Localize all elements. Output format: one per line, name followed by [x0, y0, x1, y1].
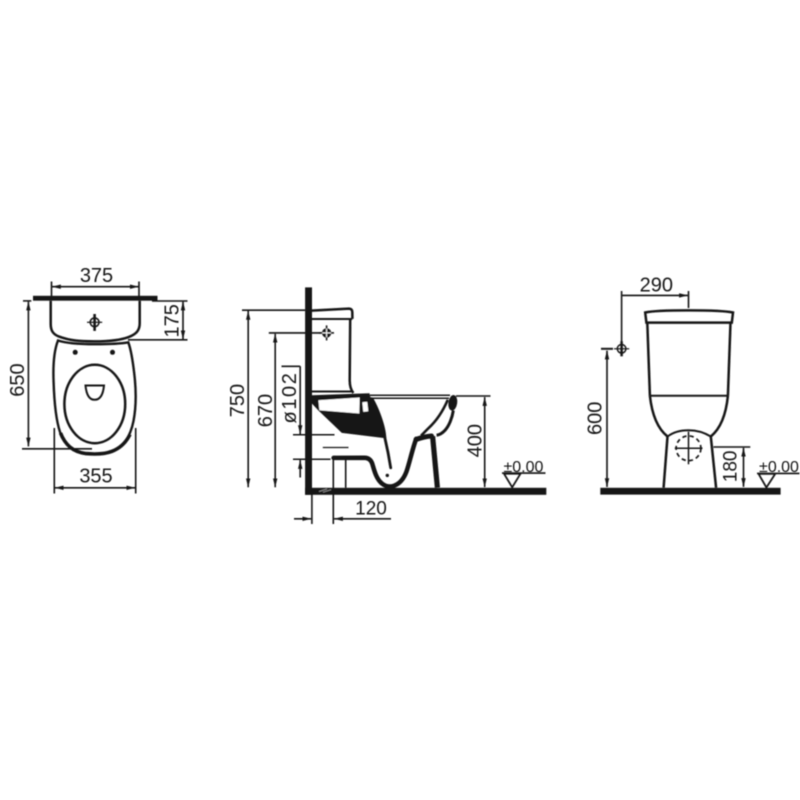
svg-text:375: 375 [80, 265, 113, 287]
svg-text:290: 290 [640, 274, 673, 296]
svg-text:600: 600 [584, 402, 606, 435]
svg-text:175: 175 [162, 304, 184, 337]
svg-text:180: 180 [720, 451, 741, 483]
svg-text:650: 650 [7, 363, 29, 396]
svg-text:670: 670 [255, 394, 277, 427]
svg-text:355: 355 [79, 466, 112, 488]
svg-text:ø102: ø102 [279, 372, 301, 424]
svg-text:400: 400 [464, 424, 486, 457]
svg-text:120: 120 [355, 499, 387, 520]
svg-text:750: 750 [227, 384, 249, 417]
